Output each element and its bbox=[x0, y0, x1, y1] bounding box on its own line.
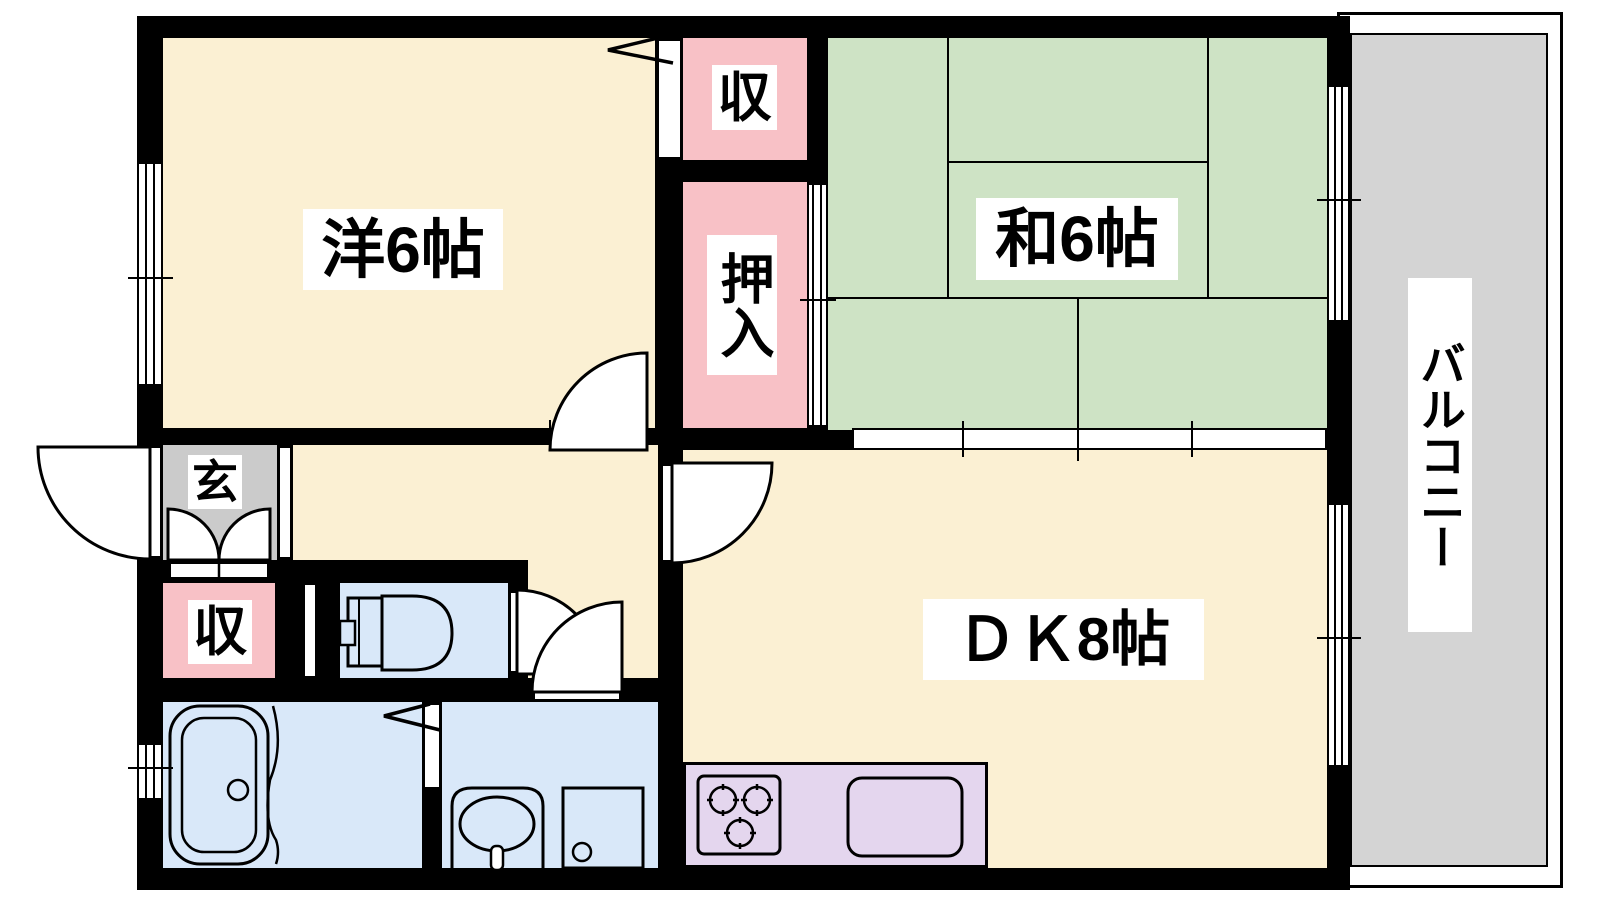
label-balcony: バルコニー bbox=[1408, 278, 1472, 632]
window-bath bbox=[139, 745, 161, 798]
hallway bbox=[293, 445, 658, 560]
window-dk-balcony bbox=[1329, 505, 1348, 765]
dk-door-leaf bbox=[660, 463, 683, 563]
toilet-wall-panel bbox=[303, 583, 317, 678]
label-oshiire: 押入 bbox=[707, 235, 777, 375]
window-japanese-balcony bbox=[1329, 87, 1348, 320]
label-western-room: 洋6帖 bbox=[303, 209, 503, 290]
upper-closet-door-leaf bbox=[656, 38, 683, 160]
toilet-door-leaf bbox=[508, 590, 527, 674]
corridor bbox=[528, 560, 658, 678]
washroom-door-leaf bbox=[532, 682, 622, 702]
bath-sliding-leaf bbox=[422, 702, 442, 790]
oshiire-fusuma bbox=[807, 183, 828, 427]
toilet-room bbox=[340, 583, 508, 678]
bathroom bbox=[163, 702, 422, 868]
floor-plan: 洋6帖 和6帖 ＤＫ8帖 バルコニー 玄 収 押入 収 bbox=[0, 0, 1600, 900]
label-japanese-room: 和6帖 bbox=[976, 198, 1178, 280]
partition-japanese-dk bbox=[852, 428, 1327, 450]
label-dk: ＤＫ8帖 bbox=[923, 599, 1204, 680]
western-door-leaf bbox=[550, 428, 647, 450]
lower-closet-doors-leaf bbox=[168, 561, 270, 580]
entry-door-arc bbox=[38, 447, 150, 559]
label-genkan: 玄 bbox=[188, 455, 242, 509]
genkan-divider bbox=[277, 445, 293, 560]
window-west-wall bbox=[139, 164, 161, 384]
washroom bbox=[442, 702, 658, 868]
label-lower-closet: 収 bbox=[188, 600, 252, 664]
kitchen-counter bbox=[683, 762, 988, 868]
entry-door-leaf bbox=[139, 445, 163, 559]
label-upper-closet: 収 bbox=[712, 65, 777, 130]
